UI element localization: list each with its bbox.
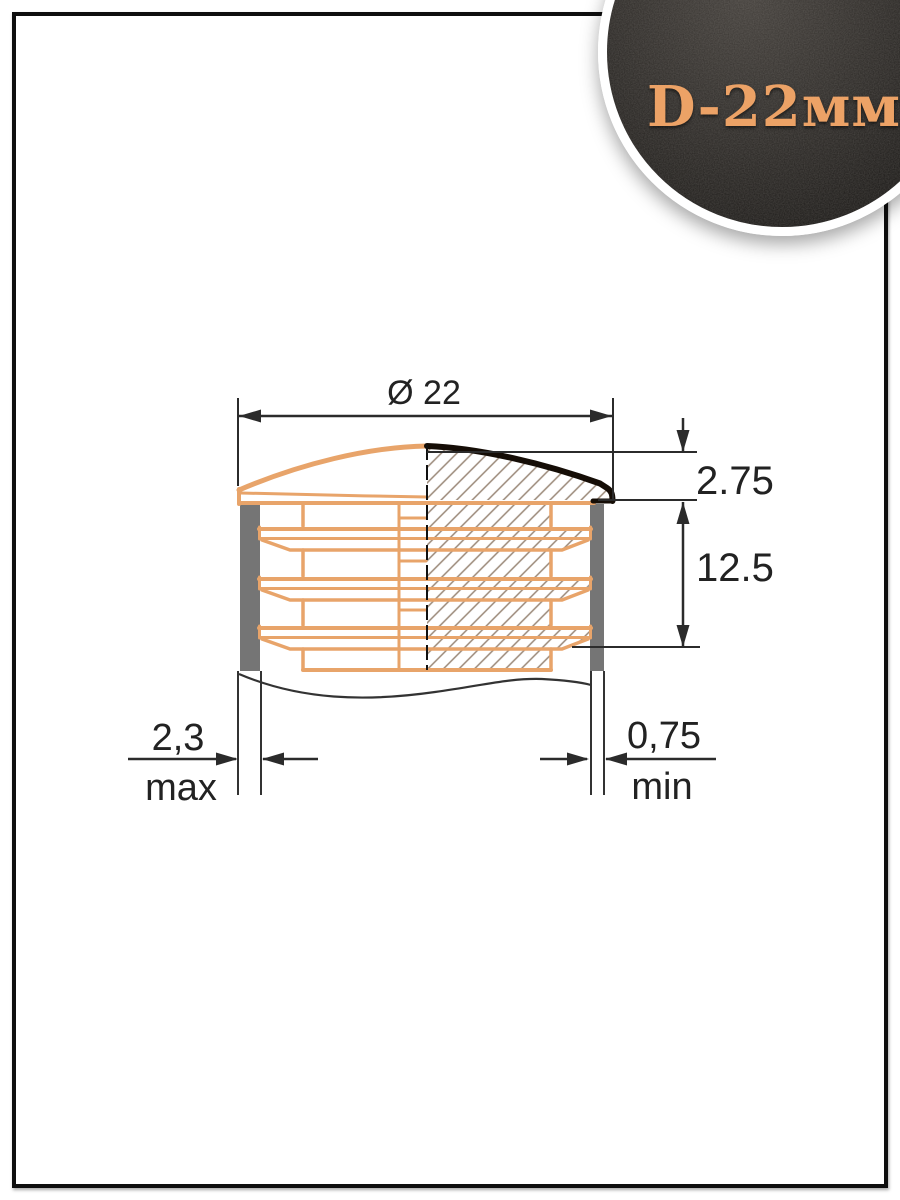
lip-height-label: 2.75	[696, 459, 774, 503]
arrow-down-icon	[677, 625, 690, 647]
arrow-right-icon	[590, 410, 612, 423]
wall-max-note: max	[145, 767, 217, 809]
arrow-right-icon	[567, 753, 589, 766]
arrow-right-icon	[216, 753, 238, 766]
wall-max-label: 2,3	[152, 717, 205, 759]
badge-label: D-22мм	[607, 73, 900, 141]
product-badge: D-22мм	[598, 0, 900, 236]
diameter-label: Ø 22	[387, 374, 461, 412]
tube-wall-left	[240, 503, 260, 671]
page: Ø 22 2.75 12.5 2,3 max	[0, 0, 900, 1200]
tube-outline-lines	[238, 671, 604, 795]
arrow-left-icon	[262, 753, 284, 766]
tube-break-line	[239, 674, 591, 698]
arrow-left-icon	[239, 410, 261, 423]
wall-min-label: 0,75	[627, 715, 701, 757]
wall-min-note: min	[631, 766, 692, 808]
arrow-left-icon	[605, 753, 627, 766]
arrow-up-icon	[677, 502, 690, 524]
insert-depth-label: 12.5	[696, 546, 774, 590]
arrow-down-icon	[677, 430, 690, 452]
